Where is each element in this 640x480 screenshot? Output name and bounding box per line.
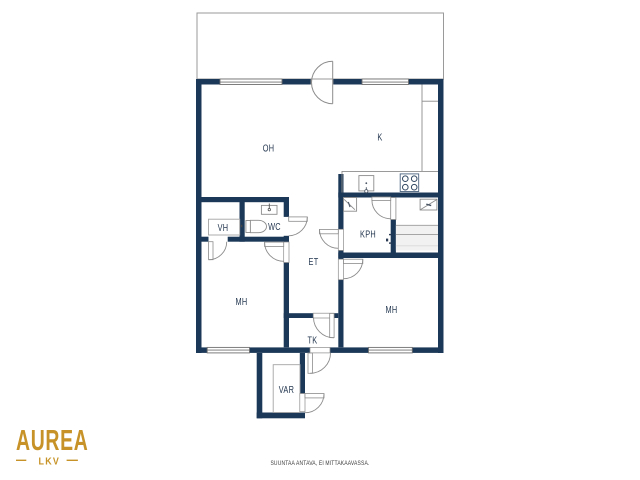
svg-text:OH: OH: [263, 142, 275, 154]
svg-text:TK: TK: [308, 334, 318, 346]
svg-text:MH: MH: [386, 304, 398, 316]
svg-text:AUREA: AUREA: [16, 425, 88, 457]
svg-text:LKV: LKV: [39, 456, 61, 468]
svg-text:ET: ET: [309, 256, 319, 268]
svg-text:WC: WC: [268, 221, 281, 233]
svg-text:VH: VH: [218, 222, 229, 234]
svg-text:KPH: KPH: [360, 228, 376, 240]
svg-text:SUUNTAA ANTAVA, EI MITTAKAAVAS: SUUNTAA ANTAVA, EI MITTAKAAVASSA.: [270, 460, 369, 467]
svg-text:K: K: [377, 131, 382, 143]
svg-text:MH: MH: [236, 296, 248, 308]
svg-text:VAR: VAR: [279, 384, 294, 396]
